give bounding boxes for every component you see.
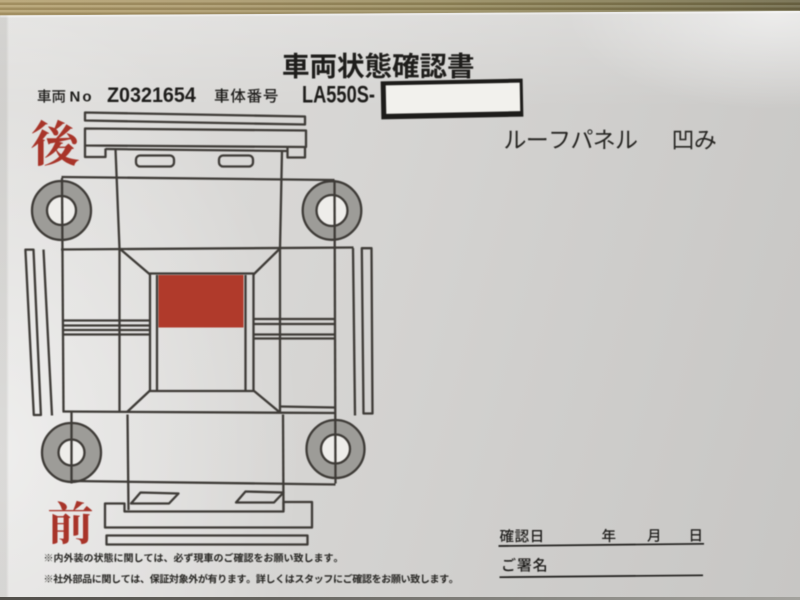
svg-text:Z0321654: Z0321654	[107, 84, 196, 107]
svg-text:No: No	[70, 89, 94, 106]
svg-text:LA550S-: LA550S-	[302, 81, 375, 108]
